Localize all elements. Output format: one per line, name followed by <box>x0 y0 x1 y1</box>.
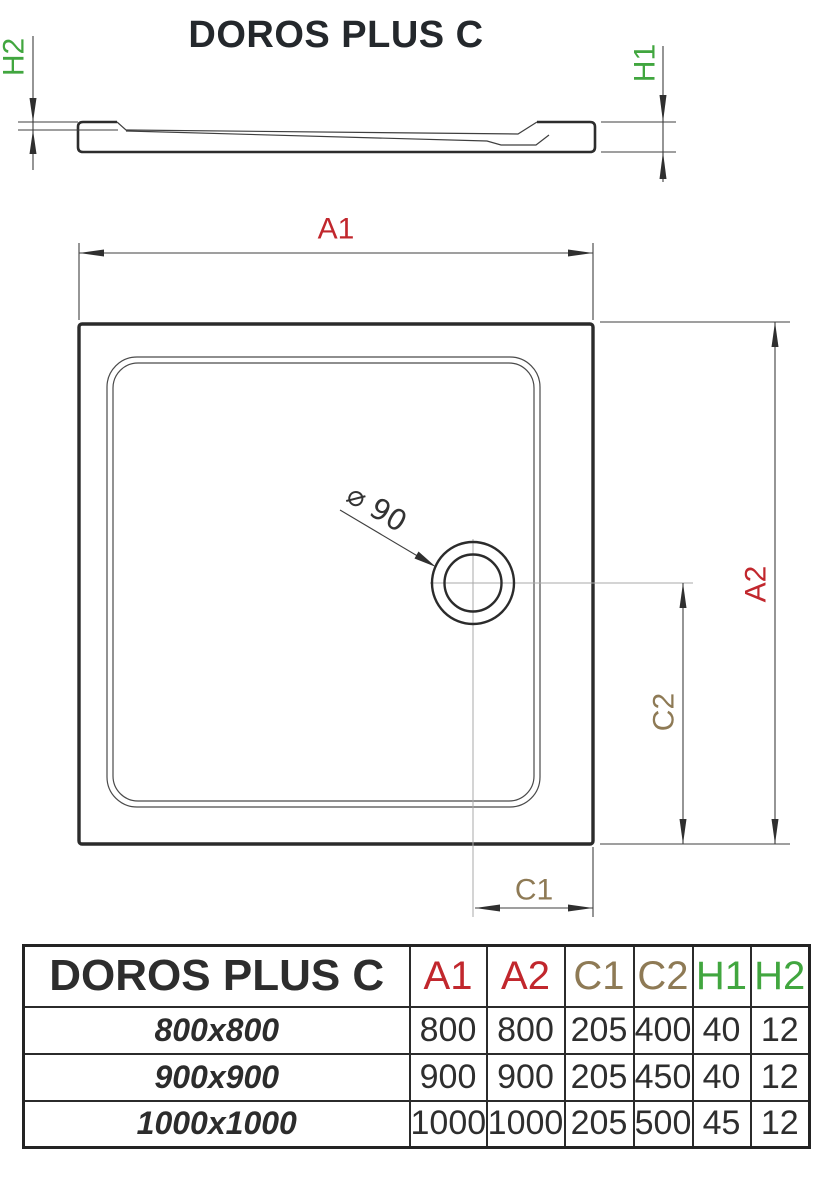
col-header-c2: C2 <box>634 946 693 1007</box>
basin-rim-inner <box>113 363 534 801</box>
col-header-h2: H2 <box>751 946 810 1007</box>
cell-value: 40 <box>693 1007 751 1054</box>
cell-value: 205 <box>565 1007 634 1054</box>
cell-value: 800 <box>410 1007 487 1054</box>
table-product-name: DOROS PLUS C <box>24 946 410 1007</box>
cell-value: 450 <box>634 1054 693 1101</box>
dimension-h2: H2 <box>0 36 118 170</box>
dimension-a1: A1 <box>79 213 593 321</box>
cell-value: 45 <box>693 1101 751 1148</box>
cell-value: 12 <box>751 1007 810 1054</box>
size-label: 1000x1000 <box>24 1101 410 1148</box>
cell-value: 1000 <box>487 1101 565 1148</box>
cell-value: 500 <box>634 1101 693 1148</box>
size-label: 900x900 <box>24 1054 410 1101</box>
h2-dimension-label: H2 <box>0 38 31 76</box>
a2-dimension-label: A2 <box>740 566 773 603</box>
table-header-row: DOROS PLUS C A1 A2 C1 C2 H1 H2 <box>24 946 810 1007</box>
h1-dimension-label: H1 <box>629 44 662 82</box>
col-header-h1: H1 <box>693 946 751 1007</box>
c2-dimension-label: C2 <box>648 693 681 731</box>
table-row-900: 900x900 900 900 205 450 40 12 <box>24 1054 810 1101</box>
table-row-1000: 1000x1000 1000 1000 205 500 45 12 <box>24 1101 810 1148</box>
col-header-c1: C1 <box>565 946 634 1007</box>
dimension-h1: H1 <box>601 44 676 182</box>
drain-diameter-label: ⌀ 90 <box>341 477 413 539</box>
plan-top-view: ⌀ 90 <box>79 324 693 917</box>
tray-outer-edge <box>79 324 593 844</box>
table-row-800: 800x800 800 800 205 400 40 12 <box>24 1007 810 1054</box>
cell-value: 900 <box>410 1054 487 1101</box>
cell-value: 205 <box>565 1101 634 1148</box>
cell-value: 400 <box>634 1007 693 1054</box>
dimensions-table: DOROS PLUS C A1 A2 C1 C2 H1 H2 800x800 8… <box>22 944 811 1149</box>
technical-drawing-page: DOROS PLUS C H2 H1 <box>0 0 836 1184</box>
col-header-a1: A1 <box>410 946 487 1007</box>
a1-dimension-label: A1 <box>318 213 355 246</box>
profile-side-view <box>78 122 595 152</box>
col-header-a2: A2 <box>487 946 565 1007</box>
cell-value: 900 <box>487 1054 565 1101</box>
cell-value: 40 <box>693 1054 751 1101</box>
cell-value: 12 <box>751 1054 810 1101</box>
dimension-c1: C1 <box>475 847 593 917</box>
cell-value: 205 <box>565 1054 634 1101</box>
cell-value: 1000 <box>410 1101 487 1148</box>
c1-dimension-label: C1 <box>515 874 553 907</box>
shower-tray-drawing: H2 H1 ⌀ 90 <box>0 0 836 944</box>
basin-rim-outer <box>107 357 540 807</box>
dimension-c2: C2 <box>648 583 687 844</box>
cell-value: 800 <box>487 1007 565 1054</box>
drain-leader-arrowhead <box>415 552 437 568</box>
size-label: 800x800 <box>24 1007 410 1054</box>
cell-value: 12 <box>751 1101 810 1148</box>
